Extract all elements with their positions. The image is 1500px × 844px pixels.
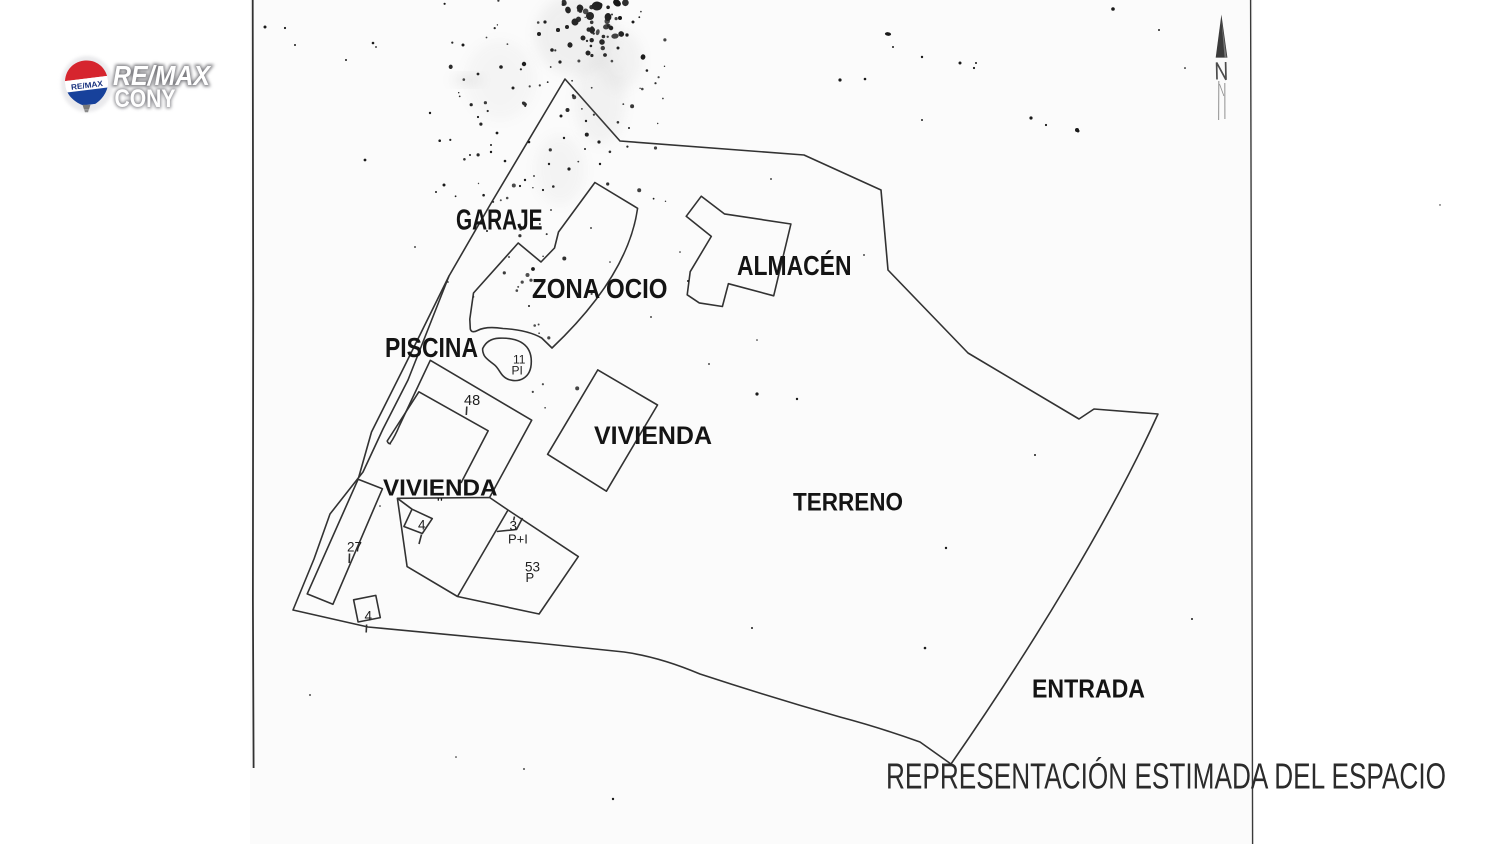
svg-text:CONY: CONY xyxy=(115,85,176,113)
svg-text:PISCINA: PISCINA xyxy=(385,332,478,363)
svg-text:48: 48 xyxy=(464,393,480,409)
svg-text:ZONA OCIO: ZONA OCIO xyxy=(532,273,668,304)
svg-text:27: 27 xyxy=(347,540,362,555)
svg-text:P: P xyxy=(526,570,535,585)
svg-text:ENTRADA: ENTRADA xyxy=(1032,674,1145,704)
svg-text:'': '' xyxy=(437,497,443,509)
svg-text:TERRENO: TERRENO xyxy=(793,489,903,517)
svg-text:ALMACÉN: ALMACÉN xyxy=(737,250,852,281)
svg-text:GARAJE: GARAJE xyxy=(456,205,543,237)
svg-text:REPRESENTACIÓN ESTIMADA DEL ES: REPRESENTACIÓN ESTIMADA DEL ESPACIO xyxy=(886,756,1446,797)
svg-text:PI: PI xyxy=(512,364,523,378)
svg-text:VIVIENDA: VIVIENDA xyxy=(594,422,712,450)
svg-text:4: 4 xyxy=(418,518,426,533)
svg-text:P+I: P+I xyxy=(508,532,528,547)
svg-text:4: 4 xyxy=(365,609,373,624)
